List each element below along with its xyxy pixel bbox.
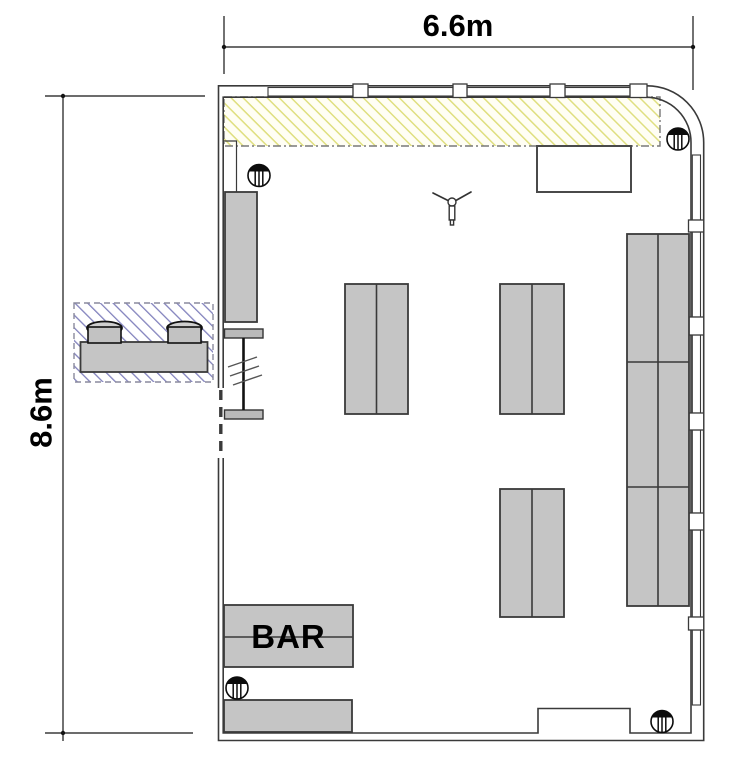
window-mullion: [689, 413, 704, 430]
service-table: [537, 146, 631, 192]
door-post: [225, 329, 264, 338]
window-pane: [467, 88, 550, 97]
window-pane: [368, 88, 453, 97]
entry-door: [225, 329, 264, 419]
outdoor-bench: [81, 342, 208, 372]
table-pair: [500, 284, 564, 414]
window-mullion: [630, 84, 647, 98]
stool-body: [168, 327, 201, 343]
window-pane: [692, 155, 700, 220]
canopy-zone: [224, 97, 660, 146]
window-pane: [692, 630, 700, 705]
window-pane: [692, 335, 700, 413]
outdoor-seating-zone: [74, 303, 213, 382]
side-counter: [225, 192, 257, 322]
table-pair: [500, 489, 564, 617]
window-mullion: [353, 84, 368, 98]
outdoor-stool: [167, 322, 202, 344]
back-counter: [224, 700, 352, 732]
window-pane: [268, 88, 353, 97]
window-mullion: [689, 220, 704, 232]
bar-label: BAR: [224, 620, 353, 653]
banquette-bench: [627, 234, 689, 606]
door-post: [225, 410, 264, 419]
column-icon: [226, 677, 248, 699]
height-dimension: [45, 94, 205, 741]
wall-break-marks-icon: [228, 357, 262, 385]
column-icon: [667, 128, 689, 150]
window-mullion: [550, 84, 565, 98]
window-mullion: [689, 513, 704, 530]
window-pane: [692, 530, 700, 617]
window-pane: [692, 430, 700, 513]
stool-body: [88, 327, 121, 343]
window-mullion: [689, 617, 704, 630]
floor-plan: 6.6m 8.6m BAR: [0, 0, 750, 759]
column-icon: [651, 711, 673, 733]
window-mullion: [453, 84, 467, 98]
partition-line: [224, 141, 237, 192]
floor-plan-canvas: [0, 0, 750, 759]
width-dimension-label: 6.6m: [398, 10, 518, 41]
window-pane: [692, 232, 700, 317]
canopy-zone-hatch: [224, 97, 660, 146]
window-pane: [565, 88, 630, 97]
ceiling-fan-icon: [433, 192, 471, 225]
outdoor-stool: [87, 322, 122, 344]
column-icon: [248, 165, 270, 187]
table-pair: [345, 284, 408, 414]
window-mullion: [689, 317, 704, 335]
height-dimension-label: 8.6m: [21, 333, 62, 493]
